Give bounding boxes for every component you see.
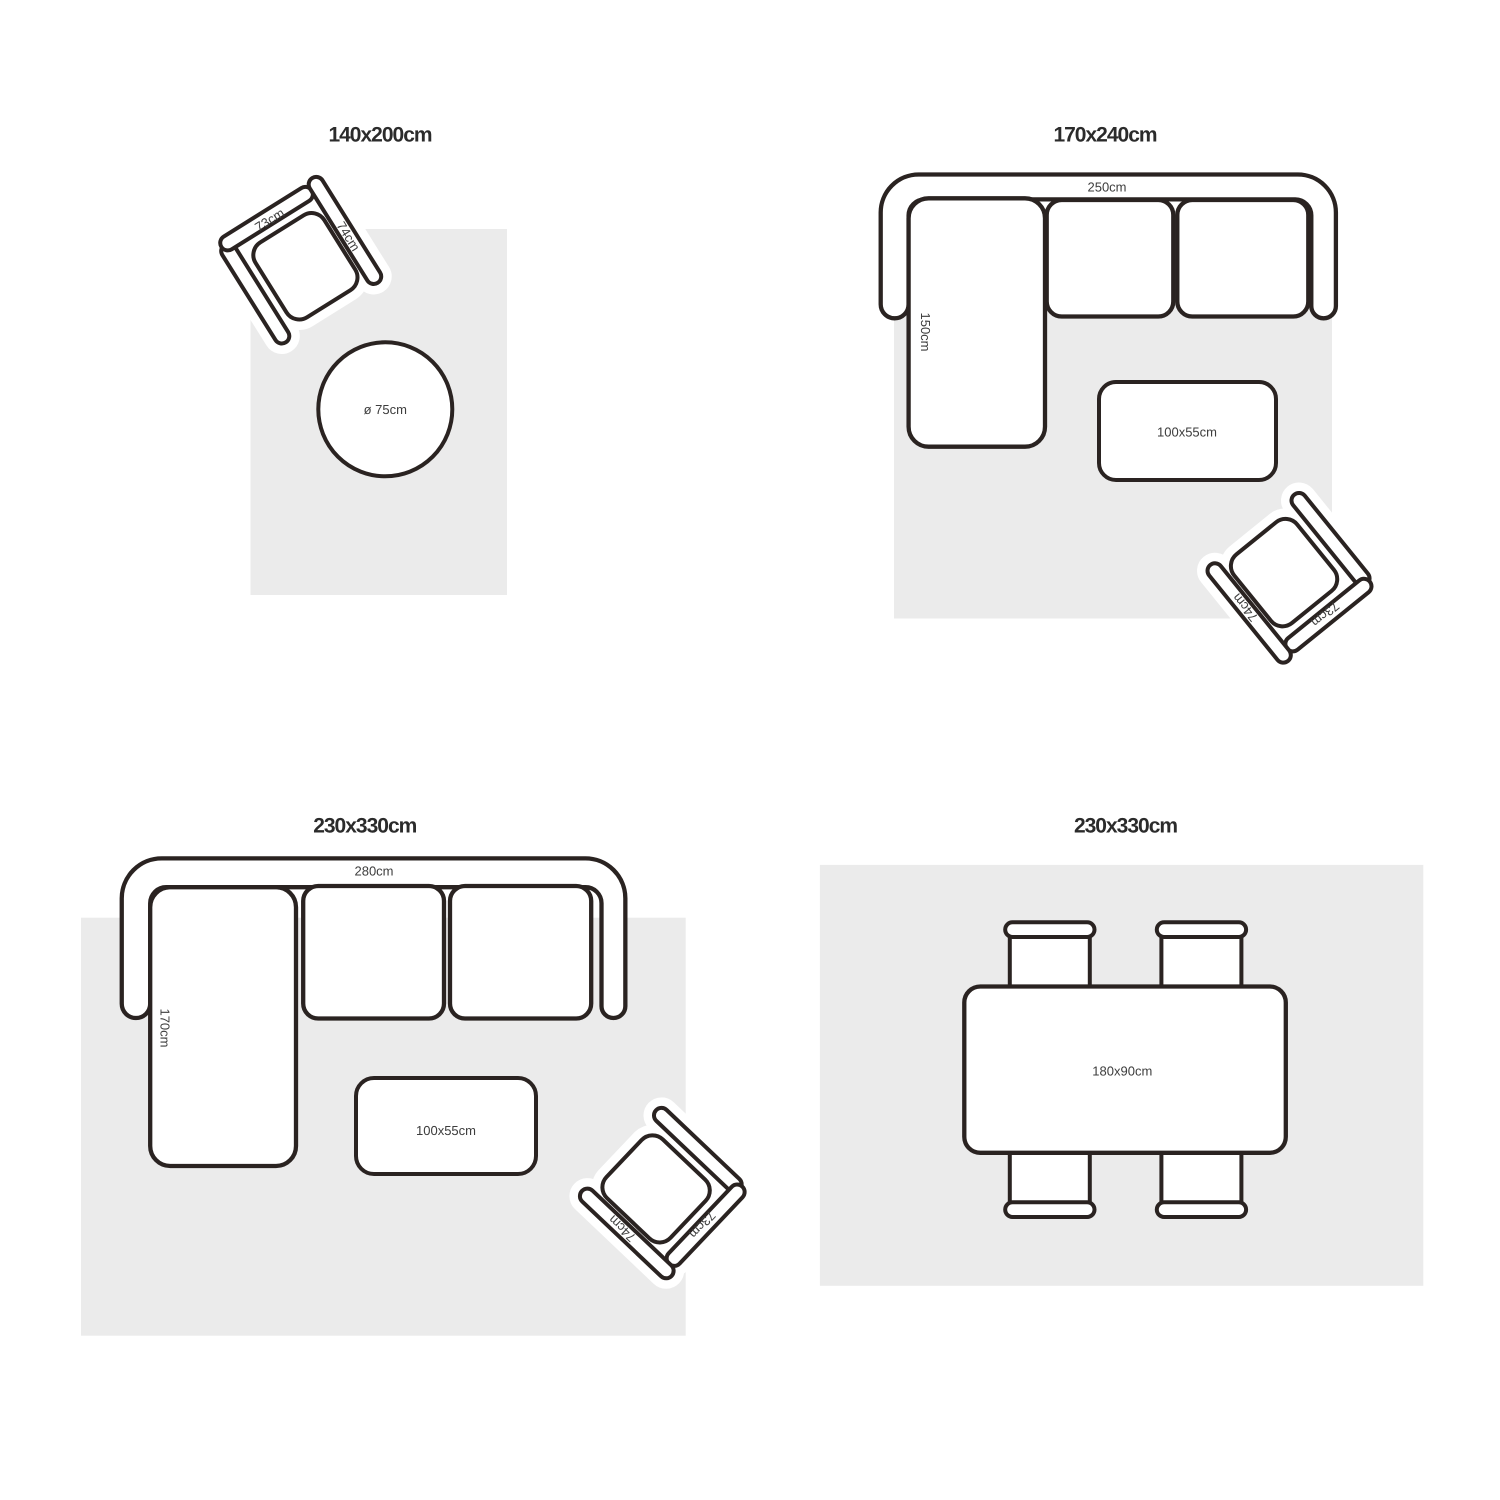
svg-text:ø 75cm: ø 75cm xyxy=(364,402,407,417)
svg-text:250cm: 250cm xyxy=(1087,180,1126,195)
svg-text:170x240cm: 170x240cm xyxy=(1053,124,1156,147)
svg-text:100x55cm: 100x55cm xyxy=(1157,424,1217,439)
svg-text:180x90cm: 180x90cm xyxy=(1092,1064,1152,1079)
svg-text:140x200cm: 140x200cm xyxy=(328,124,431,147)
svg-text:230x330cm: 230x330cm xyxy=(1074,815,1177,838)
svg-text:230x330cm: 230x330cm xyxy=(313,815,416,838)
svg-text:170cm: 170cm xyxy=(158,1008,173,1047)
svg-text:280cm: 280cm xyxy=(354,864,393,879)
svg-text:100x55cm: 100x55cm xyxy=(416,1123,476,1138)
svg-text:150cm: 150cm xyxy=(918,312,933,351)
